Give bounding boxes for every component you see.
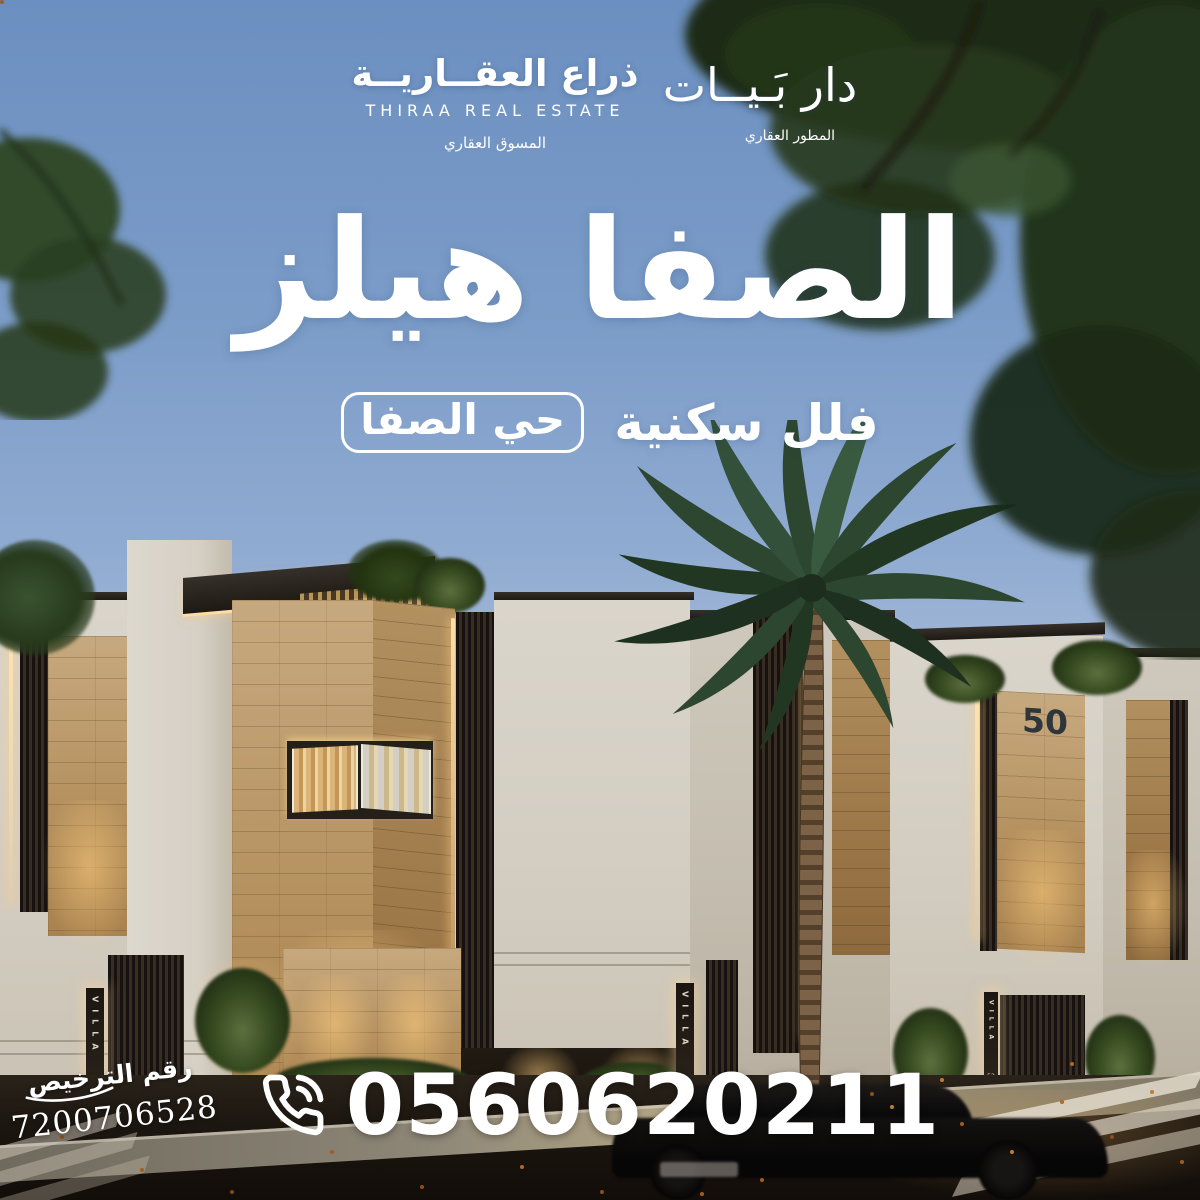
main-left-stone-glow	[42, 800, 137, 950]
corner-window-right-pane	[361, 744, 431, 814]
car-plate	[660, 1162, 738, 1177]
entry-gate-louver	[108, 955, 184, 1095]
corner-window	[287, 741, 433, 819]
fallen-leaves	[0, 0, 4, 4]
villa-sign-left-label: VILLA	[91, 996, 100, 1057]
overhanging-tree	[580, 0, 1200, 660]
tower-right-louver	[456, 612, 494, 1050]
real-estate-poster: 50 V	[0, 0, 1200, 1200]
entry-tree	[195, 968, 290, 1073]
villa-far-right-glow	[1118, 850, 1188, 970]
left-branch-tree	[0, 90, 260, 420]
corner-window-left-pane	[292, 745, 358, 812]
main-left-slit	[9, 635, 13, 905]
car	[612, 1082, 1112, 1200]
car-wheel-front	[978, 1140, 1038, 1200]
